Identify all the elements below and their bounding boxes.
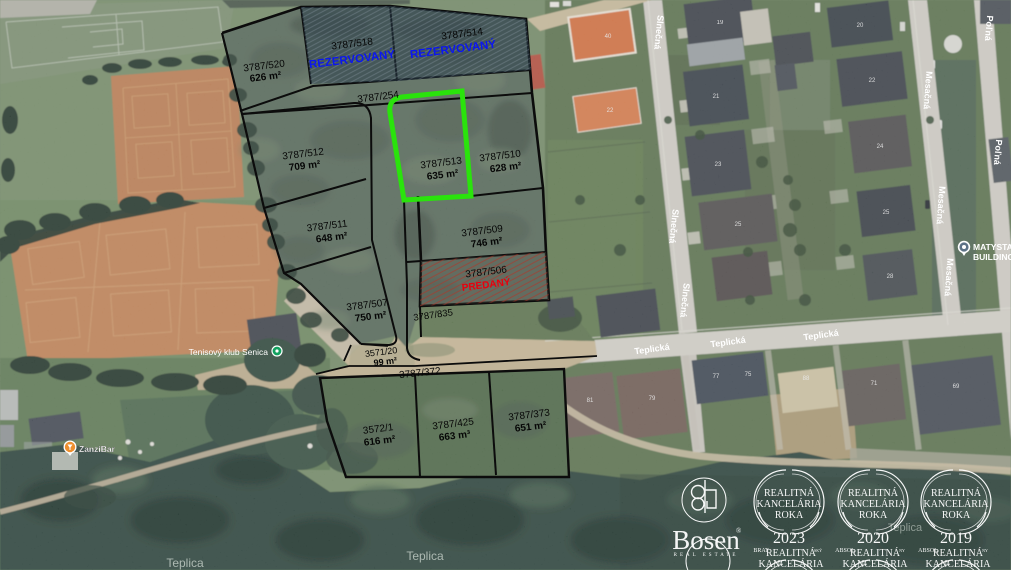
svg-text:22: 22 [607,108,614,114]
svg-text:2020: 2020 [857,530,889,547]
svg-text:®: ® [736,527,742,535]
svg-text:KANCELÁRIA: KANCELÁRIA [757,498,823,510]
svg-text:SKÝ: SKÝ [814,548,822,553]
svg-text:REALITNÁ: REALITNÁ [764,487,815,499]
svg-text:71: 71 [871,381,878,387]
svg-text:19: 19 [717,20,724,26]
svg-text:KANCELÁRIA: KANCELÁRIA [926,558,992,570]
svg-text:BRAT: BRAT [753,548,769,554]
svg-text:81: 81 [587,398,594,404]
svg-text:2019: 2019 [940,530,972,547]
svg-text:Bosen: Bosen [672,525,740,555]
svg-text:REALITNÁ: REALITNÁ [766,547,817,559]
svg-text:REALITNÁ: REALITNÁ [848,487,899,499]
svg-text:25: 25 [883,210,890,216]
svg-text:REALITNÁ: REALITNÁ [931,487,982,499]
svg-text:ABSOL: ABSOL [918,548,938,554]
svg-text:Teplica: Teplica [166,556,204,570]
svg-text:KANCELÁRIA: KANCELÁRIA [841,498,907,510]
svg-text:REAL ESTATE: REAL ESTATE [674,553,739,558]
svg-text:75: 75 [745,372,752,378]
svg-text:21: 21 [713,94,720,100]
svg-text:24: 24 [877,144,884,150]
svg-text:2023: 2023 [773,530,805,547]
svg-text:REALITNÁ: REALITNÁ [933,547,984,559]
svg-text:NY: NY [982,548,988,553]
svg-text:20: 20 [857,23,864,29]
svg-text:40: 40 [605,34,612,40]
svg-text:ROKA: ROKA [942,510,971,521]
svg-text:KANCELÁRIA: KANCELÁRIA [843,558,909,570]
svg-text:KANCELÁRIA: KANCELÁRIA [759,558,825,570]
svg-text:REALITNÁ: REALITNÁ [850,547,901,559]
svg-text:25: 25 [735,222,742,228]
svg-text:ABSOL: ABSOL [835,548,855,554]
svg-text:ROKA: ROKA [859,510,888,521]
svg-text:NY: NY [899,548,905,553]
svg-text:Tenisový klub Senica: Tenisový klub Senica [189,347,269,357]
svg-text:Teplica: Teplica [406,549,444,563]
svg-text:ROKA: ROKA [775,510,804,521]
svg-text:22: 22 [869,78,876,84]
svg-text:88: 88 [803,376,810,382]
svg-text:69: 69 [953,384,960,390]
svg-text:77: 77 [713,374,720,380]
svg-text:MATYSTAV: MATYSTAV [973,242,1011,252]
svg-text:ZanziBar: ZanziBar [79,444,116,454]
svg-text:BUILDING,: BUILDING, [973,252,1011,262]
svg-text:79: 79 [649,396,656,402]
svg-text:28: 28 [887,274,894,280]
svg-text:KANCELÁRIA: KANCELÁRIA [924,498,990,510]
svg-text:23: 23 [715,162,722,168]
